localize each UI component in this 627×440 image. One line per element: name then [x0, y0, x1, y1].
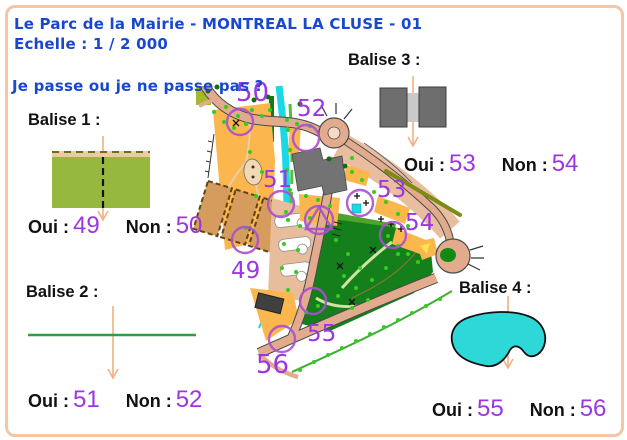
small-pond	[352, 204, 361, 213]
map-label-52: 52	[297, 96, 326, 122]
oui-label: Oui :	[404, 155, 445, 176]
pond-symbol	[440, 292, 565, 384]
oui-value: 53	[449, 150, 476, 178]
non-label: Non :	[530, 400, 576, 421]
oui-value: 55	[477, 395, 504, 423]
page-title: Le Parc de la Mairie - MONTREAL LA CLUSE…	[14, 15, 422, 33]
oui-value: 49	[73, 212, 100, 240]
non-label: Non :	[126, 217, 172, 238]
fence-line	[205, 134, 214, 178]
map-label-49: 49	[231, 258, 260, 284]
oui-label: Oui :	[28, 391, 69, 412]
non-value: 54	[552, 150, 579, 178]
balise-2-answers: Oui : 51 Non : 52	[28, 386, 202, 414]
scale-label: Echelle : 1 / 2 000	[14, 35, 168, 53]
oui-value: 51	[73, 386, 100, 414]
balise-3-title: Balise 3 :	[348, 51, 420, 70]
non-label: Non :	[126, 391, 172, 412]
question-text: Je passe ou je ne passe pas ?	[12, 77, 264, 95]
oui-label: Oui :	[28, 217, 69, 238]
building-passage-symbol	[372, 72, 458, 156]
map-label-54: 54	[405, 210, 434, 236]
orienteering-worksheet: 50 52 51 53 54 49 55 56 Le Parc de la Ma…	[0, 0, 627, 440]
non-value: 56	[580, 395, 607, 423]
balise-4-answers: Oui : 55 Non : 56	[432, 395, 606, 423]
map-label-51: 51	[263, 167, 292, 193]
balise-3-answers: Oui : 53 Non : 54	[404, 150, 578, 178]
non-value: 52	[176, 386, 203, 414]
non-value: 50	[176, 212, 203, 240]
roundabout-east	[436, 239, 484, 273]
non-label: Non :	[502, 155, 548, 176]
balise-1-answers: Oui : 49 Non : 50	[28, 212, 202, 240]
map-label-56: 56	[256, 350, 289, 380]
oui-label: Oui :	[432, 400, 473, 421]
map-label-53: 53	[377, 177, 406, 203]
green-fence-line-symbol	[18, 300, 208, 386]
map-label-55: 55	[307, 321, 336, 347]
balise-1-title: Balise 1 :	[28, 111, 100, 130]
